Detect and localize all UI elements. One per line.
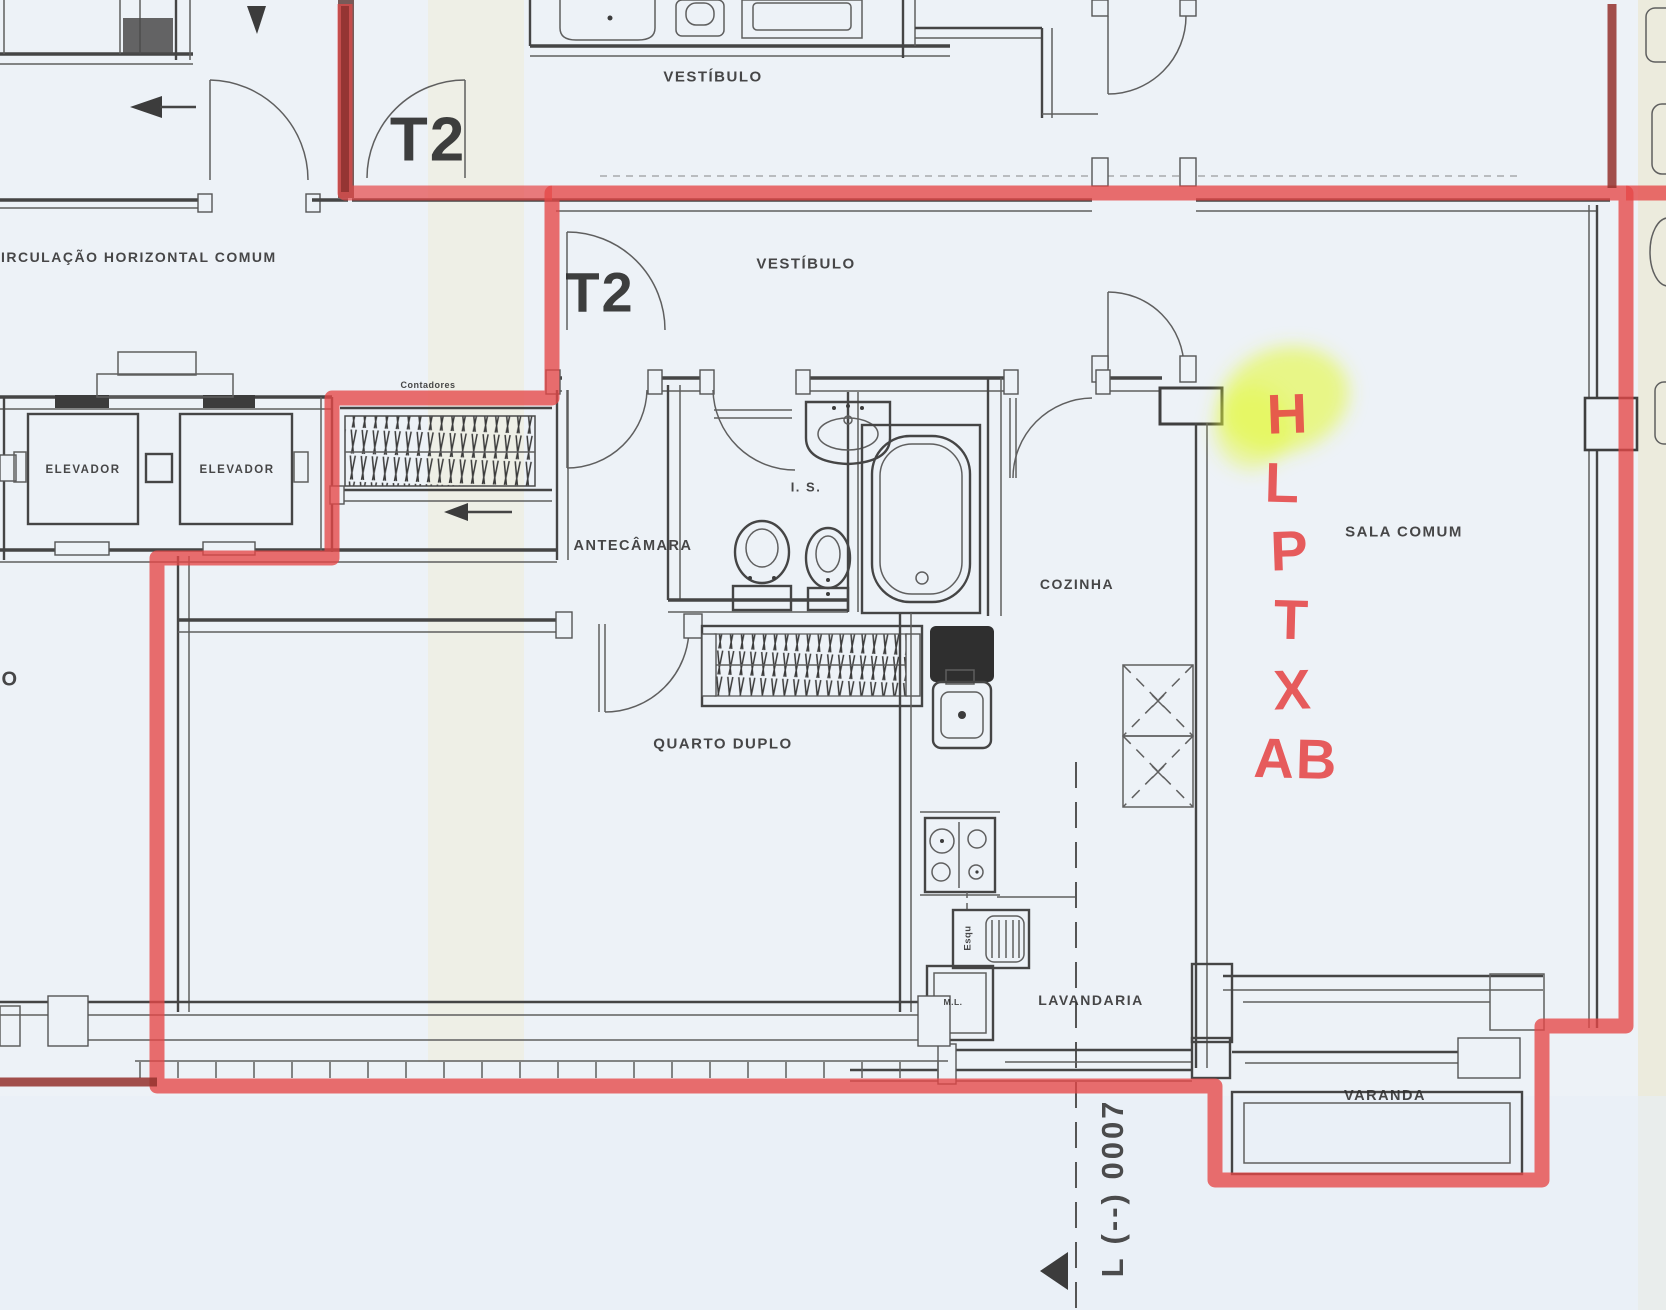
neighbor-kitchen-top — [530, 0, 1098, 118]
room-label-is: I. S. — [791, 480, 822, 495]
red-letter-l: L — [1264, 455, 1302, 512]
door-arc — [1013, 398, 1092, 478]
vestibulo-walls — [546, 232, 1222, 478]
corridor-walls — [0, 0, 1610, 212]
red-letter-h: H — [1266, 385, 1310, 442]
stair-hatch-block — [123, 18, 173, 54]
room-label-quarto-duplo: QUARTO DUPLO — [653, 736, 792, 753]
red-letter-p: P — [1269, 522, 1310, 579]
quarto-walls — [178, 556, 922, 1012]
stair-arrow-down-icon — [247, 6, 266, 34]
kitchen — [920, 626, 1076, 1040]
red-letter-x: X — [1272, 661, 1313, 718]
stair-arrow-left-icon — [130, 96, 162, 118]
contadores-hatch — [345, 416, 535, 486]
door-arc — [713, 390, 795, 470]
fridge-icon — [930, 626, 994, 682]
door-arc — [210, 80, 308, 180]
unit-boundary — [0, 4, 1666, 1180]
label-water-heater: Esqu — [963, 925, 974, 950]
red-letter-ab: AB — [1253, 730, 1339, 788]
partial-neighbor-label: O — [1, 669, 18, 692]
plan-code-label: L (--) 0007 — [1095, 1099, 1131, 1278]
unit-tag: T2 — [565, 260, 634, 325]
stove-icon — [925, 818, 995, 892]
room-label-cozinha: COZINHA — [1040, 576, 1114, 592]
bathroom — [668, 378, 1001, 616]
unit-tag-neighbor: T2 — [390, 105, 466, 176]
door-arc — [567, 390, 647, 468]
plan-drawing — [0, 0, 1666, 1310]
stair-block — [0, 0, 308, 180]
sala-walls — [1192, 205, 1637, 1078]
room-label-sala-comum: SALA COMUM — [1345, 524, 1463, 541]
room-label-lavandaria: LAVANDARIA — [1038, 992, 1143, 1008]
room-label-elevador-2: ELEVADOR — [199, 464, 274, 476]
room-label-vestibulo: VESTÍBULO — [756, 256, 855, 273]
room-label-varanda: VARANDA — [1344, 1088, 1426, 1104]
kitchen-sala-wall — [1123, 423, 1207, 1068]
elevator-block — [0, 352, 332, 560]
corridor-label: CIRCULAÇÃO HORIZONTAL COMUM — [0, 249, 277, 265]
toilet-icon — [733, 586, 791, 610]
door-arc — [1108, 16, 1186, 94]
floor-plan-scan: CIRCULAÇÃO HORIZONTAL COMUM VESTÍBULO T2… — [0, 0, 1666, 1310]
red-letter-t: T — [1273, 592, 1311, 649]
door-arc — [1108, 292, 1184, 368]
room-label-elevador-1: ELEVADOR — [45, 464, 120, 476]
label-contadores: Contadores — [400, 380, 455, 390]
room-label-antecamara: ANTECÂMARA — [574, 538, 693, 554]
door-arc — [605, 628, 689, 712]
room-label-vestibulo-neighbor: VESTÍBULO — [663, 69, 762, 86]
label-washing-machine: M.L. — [944, 997, 963, 1007]
